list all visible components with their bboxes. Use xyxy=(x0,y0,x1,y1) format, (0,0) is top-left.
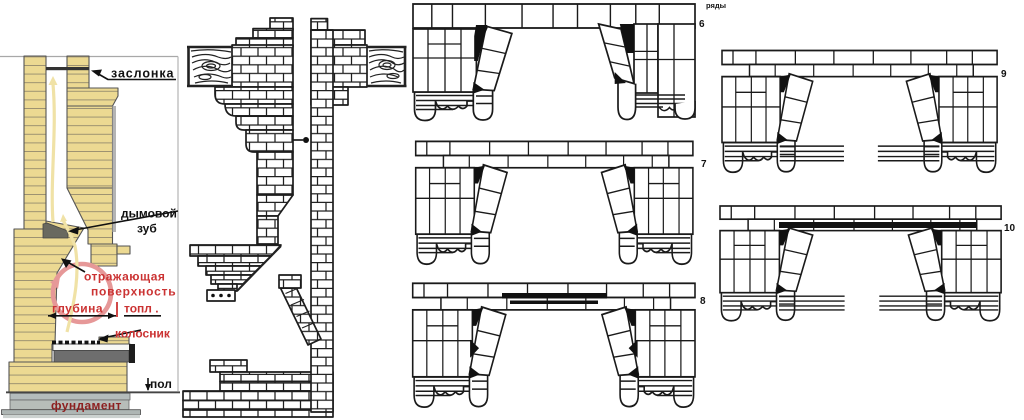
svg-text:пол: пол xyxy=(150,377,172,391)
svg-text:6: 6 xyxy=(699,19,705,30)
svg-text:10: 10 xyxy=(1004,223,1016,234)
svg-text:фундамент: фундамент xyxy=(51,399,122,413)
svg-text:колосник: колосник xyxy=(115,327,171,341)
svg-text:8: 8 xyxy=(700,296,706,307)
svg-text:зуб: зуб xyxy=(137,222,157,236)
svg-text:7: 7 xyxy=(701,159,707,170)
svg-text:отражающая: отражающая xyxy=(84,270,165,284)
svg-text:дымовой: дымовой xyxy=(121,207,177,221)
svg-text:9: 9 xyxy=(1001,69,1007,80)
svg-text:заслонка: заслонка xyxy=(111,67,174,81)
svg-text:ряды: ряды xyxy=(706,1,726,10)
svg-text:поверхность: поверхность xyxy=(91,285,176,299)
svg-text:топл .: топл . xyxy=(124,302,159,316)
svg-text:глубина: глубина xyxy=(52,302,103,316)
